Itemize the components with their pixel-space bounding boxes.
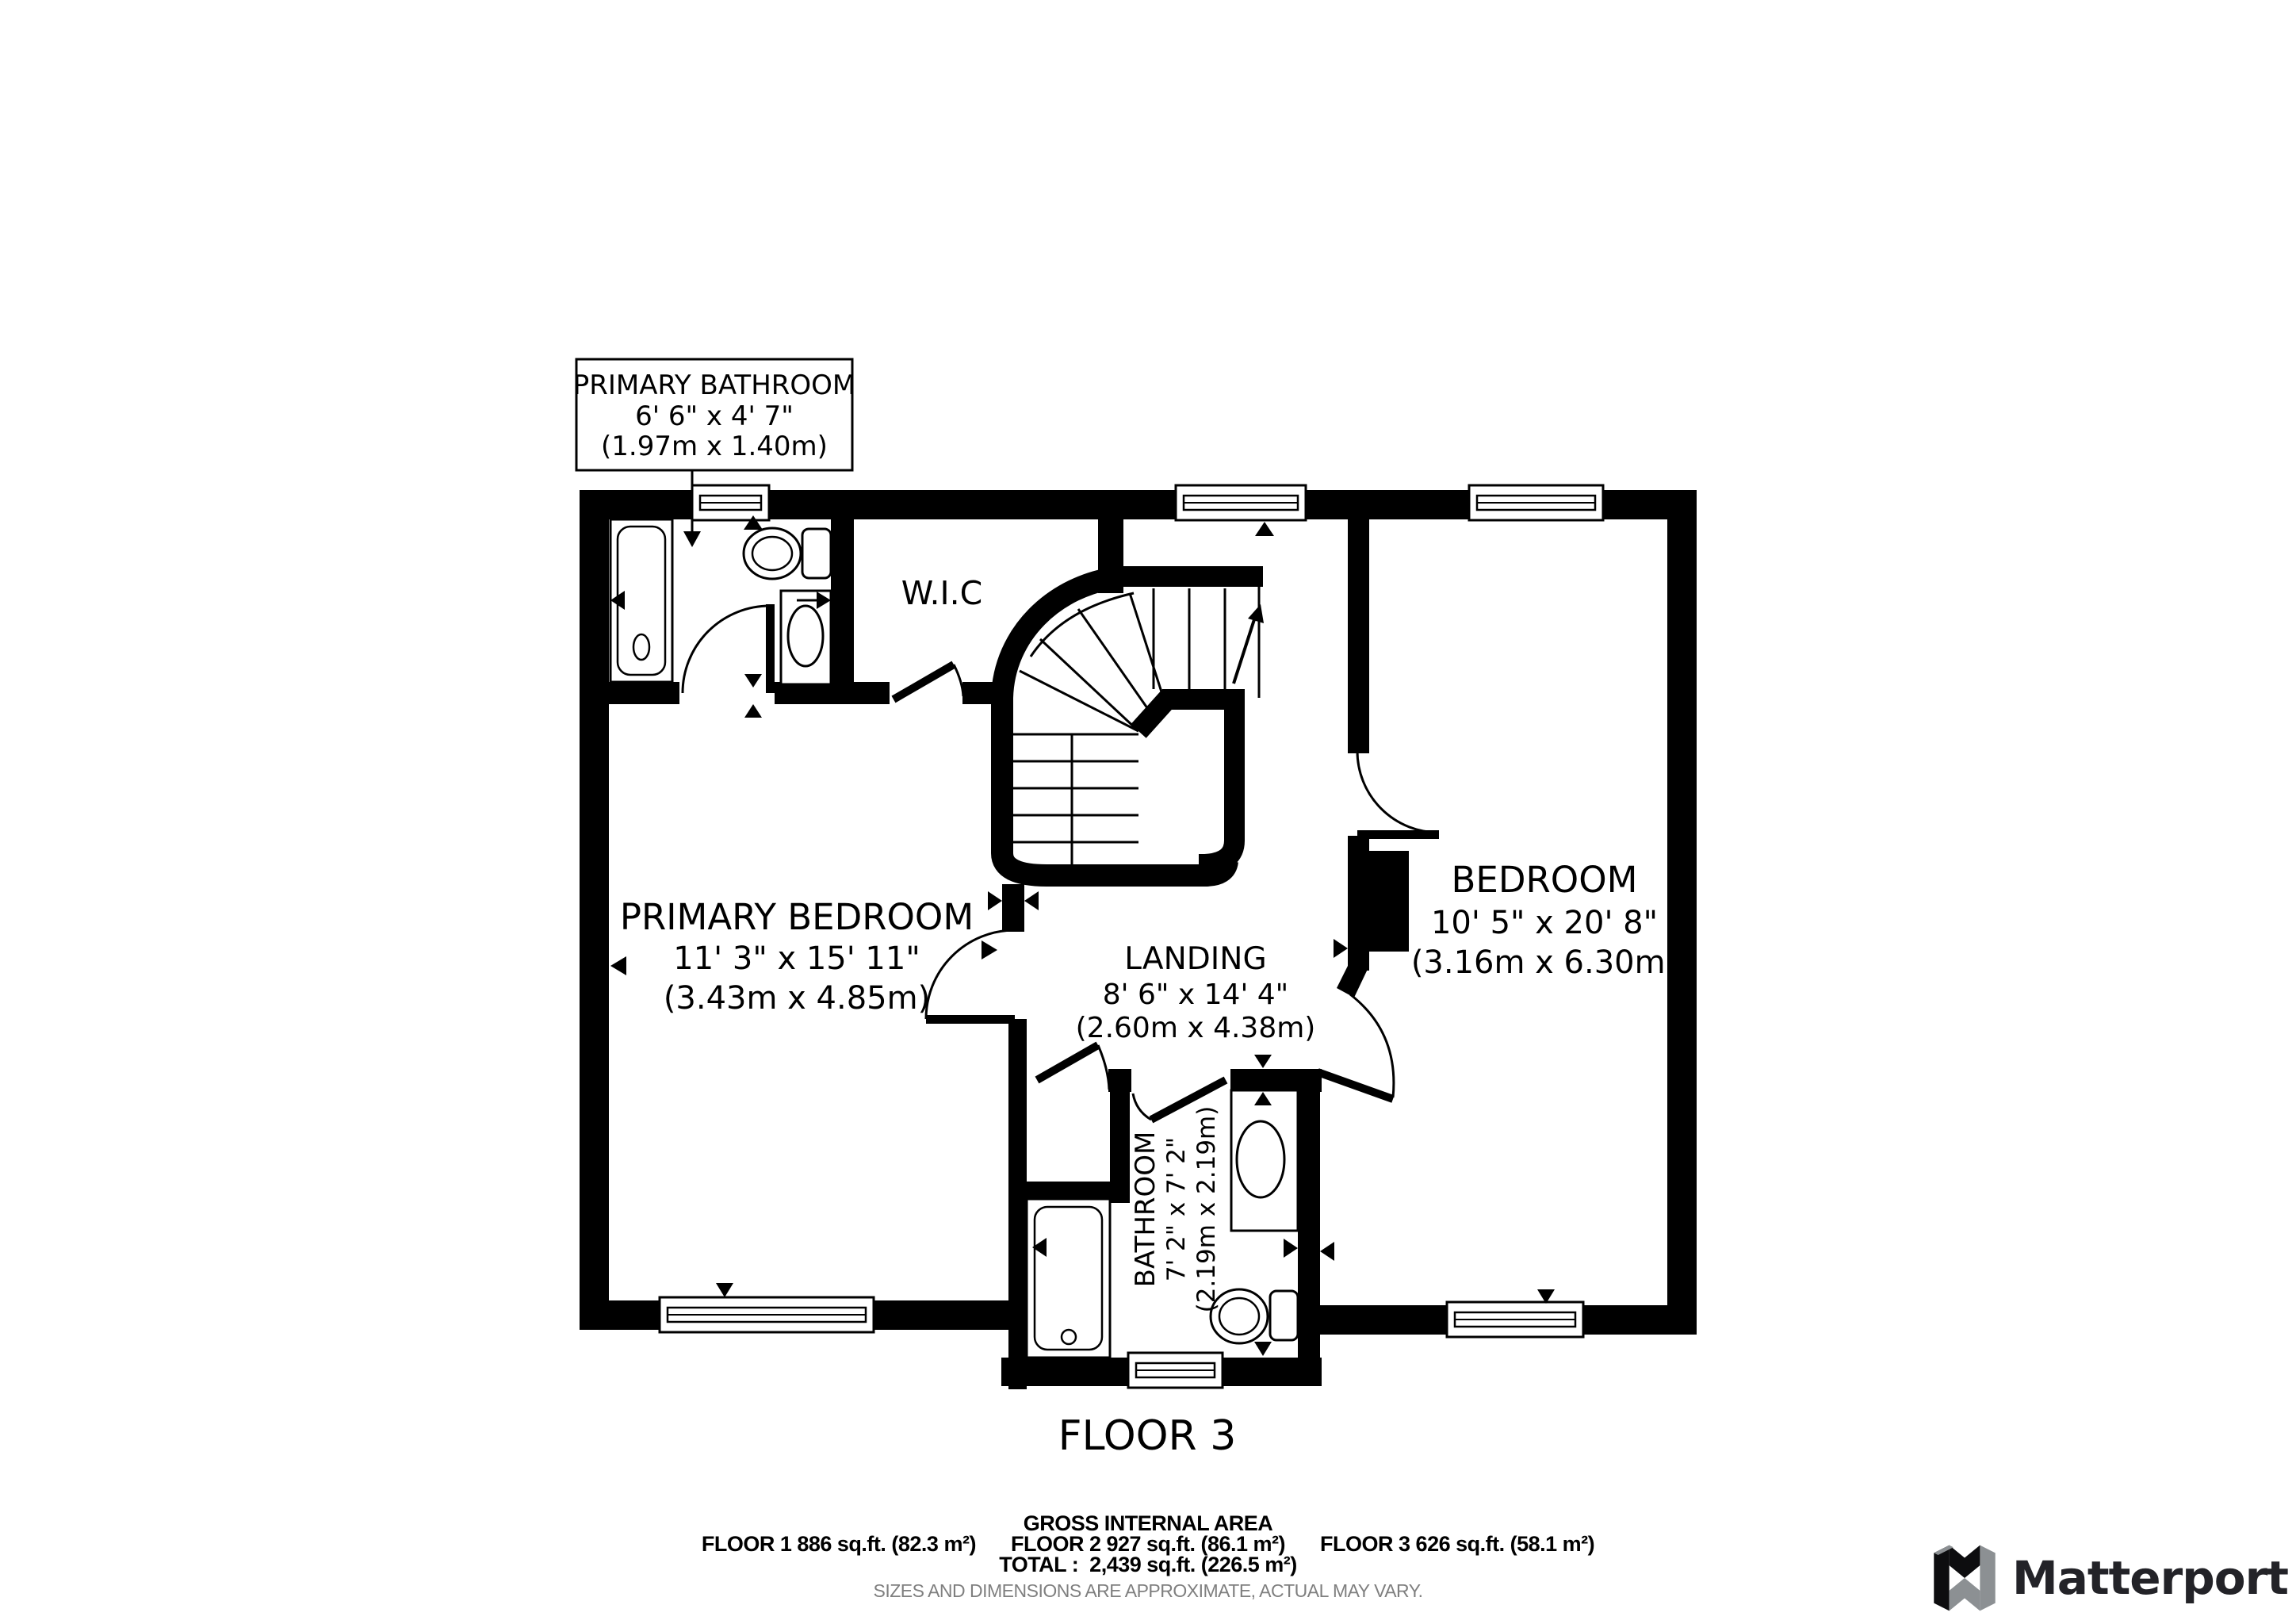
door-bedroom-upper [1357, 751, 1439, 839]
bedroom-metric: (3.16m x 6.30m) [1411, 944, 1678, 981]
bathroom-label-group: BATHROOM 7' 2" x 7' 2" (2.19m x 2.19m) [1130, 1106, 1221, 1313]
door-closet [1037, 1045, 1109, 1090]
primary-bathroom-name: PRIMARY BATHROOM [573, 370, 856, 401]
landing-label: LANDING [1124, 941, 1266, 977]
wic-label: W.I.C [901, 574, 983, 612]
primary-bedroom-metric: (3.43m x 4.85m) [664, 980, 930, 1017]
matterport-logo: Matterport [1930, 1543, 2288, 1613]
floor-plan-page: PRIMARY BATHROOM 6' 6" x 4' 7" (1.97m x … [0, 0, 2296, 1624]
window-bathroom [1128, 1353, 1223, 1388]
stair-outer-wall [1002, 577, 1227, 875]
gross-internal-area-title: GROSS INTERNAL AREA [0, 1513, 2296, 1534]
primary-bedroom-label: PRIMARY BEDROOM [620, 896, 974, 938]
landing-metric: (2.60m x 4.38m) [1076, 1012, 1316, 1044]
primary-bathroom-dims: 6' 6" x 4' 7" [635, 400, 794, 432]
floor1-area: FLOOR 1 886 sq.ft. (82.3 m²) [702, 1534, 976, 1554]
angled-wall [1337, 966, 1369, 998]
chimney-breast [1369, 851, 1409, 952]
bathroom-label: BATHROOM [1130, 1132, 1161, 1288]
door-bedroom-lower [1318, 994, 1394, 1099]
landing-dims: 8' 6" x 14' 4" [1103, 979, 1289, 1011]
window-bedroom-top [1469, 485, 1603, 520]
door-primary-bathroom [683, 604, 775, 693]
floor-plan-drawing: PRIMARY BATHROOM 6' 6" x 4' 7" (1.97m x … [0, 0, 2296, 1624]
primary-bedroom-dims: 11' 3" x 15' 11" [673, 940, 920, 977]
primary-bathroom-fixtures [610, 519, 831, 684]
sink-icon [1231, 1090, 1298, 1231]
floor2-area: FLOOR 2 927 sq.ft. (86.1 m²) [1011, 1534, 1285, 1554]
bathroom-metric: (2.19m x 2.19m) [1192, 1106, 1221, 1313]
door-wic [894, 665, 963, 699]
bedroom-label: BEDROOM [1452, 859, 1638, 901]
window-bedroom-bottom [1447, 1302, 1583, 1337]
bathtub-icon [1027, 1199, 1110, 1358]
leader-arrow-icon [683, 531, 701, 547]
door-primary-bedroom [926, 930, 1015, 1024]
stair-inner-wall [1138, 699, 1234, 864]
toilet-icon [1211, 1289, 1298, 1343]
staircase-icon [1002, 577, 1264, 875]
matterport-wordmark: Matterport [2012, 1551, 2288, 1605]
window-primary-bedroom [660, 1297, 874, 1332]
primary-bathroom-metric: (1.97m x 1.40m) [601, 431, 828, 462]
window-landing [1176, 485, 1306, 520]
toilet-icon [744, 528, 831, 579]
bedroom-dims: 10' 5" x 20' 8" [1431, 905, 1658, 941]
bathroom-dims: 7' 2" x 7' 2" [1162, 1137, 1191, 1281]
floor3-area: FLOOR 3 626 sq.ft. (58.1 m²) [1320, 1534, 1594, 1554]
window-primary-bathroom [692, 485, 769, 520]
stair-treads [1004, 587, 1259, 864]
matterport-mark-icon [1930, 1543, 1999, 1613]
floor-label: FLOOR 3 [1058, 1412, 1237, 1460]
